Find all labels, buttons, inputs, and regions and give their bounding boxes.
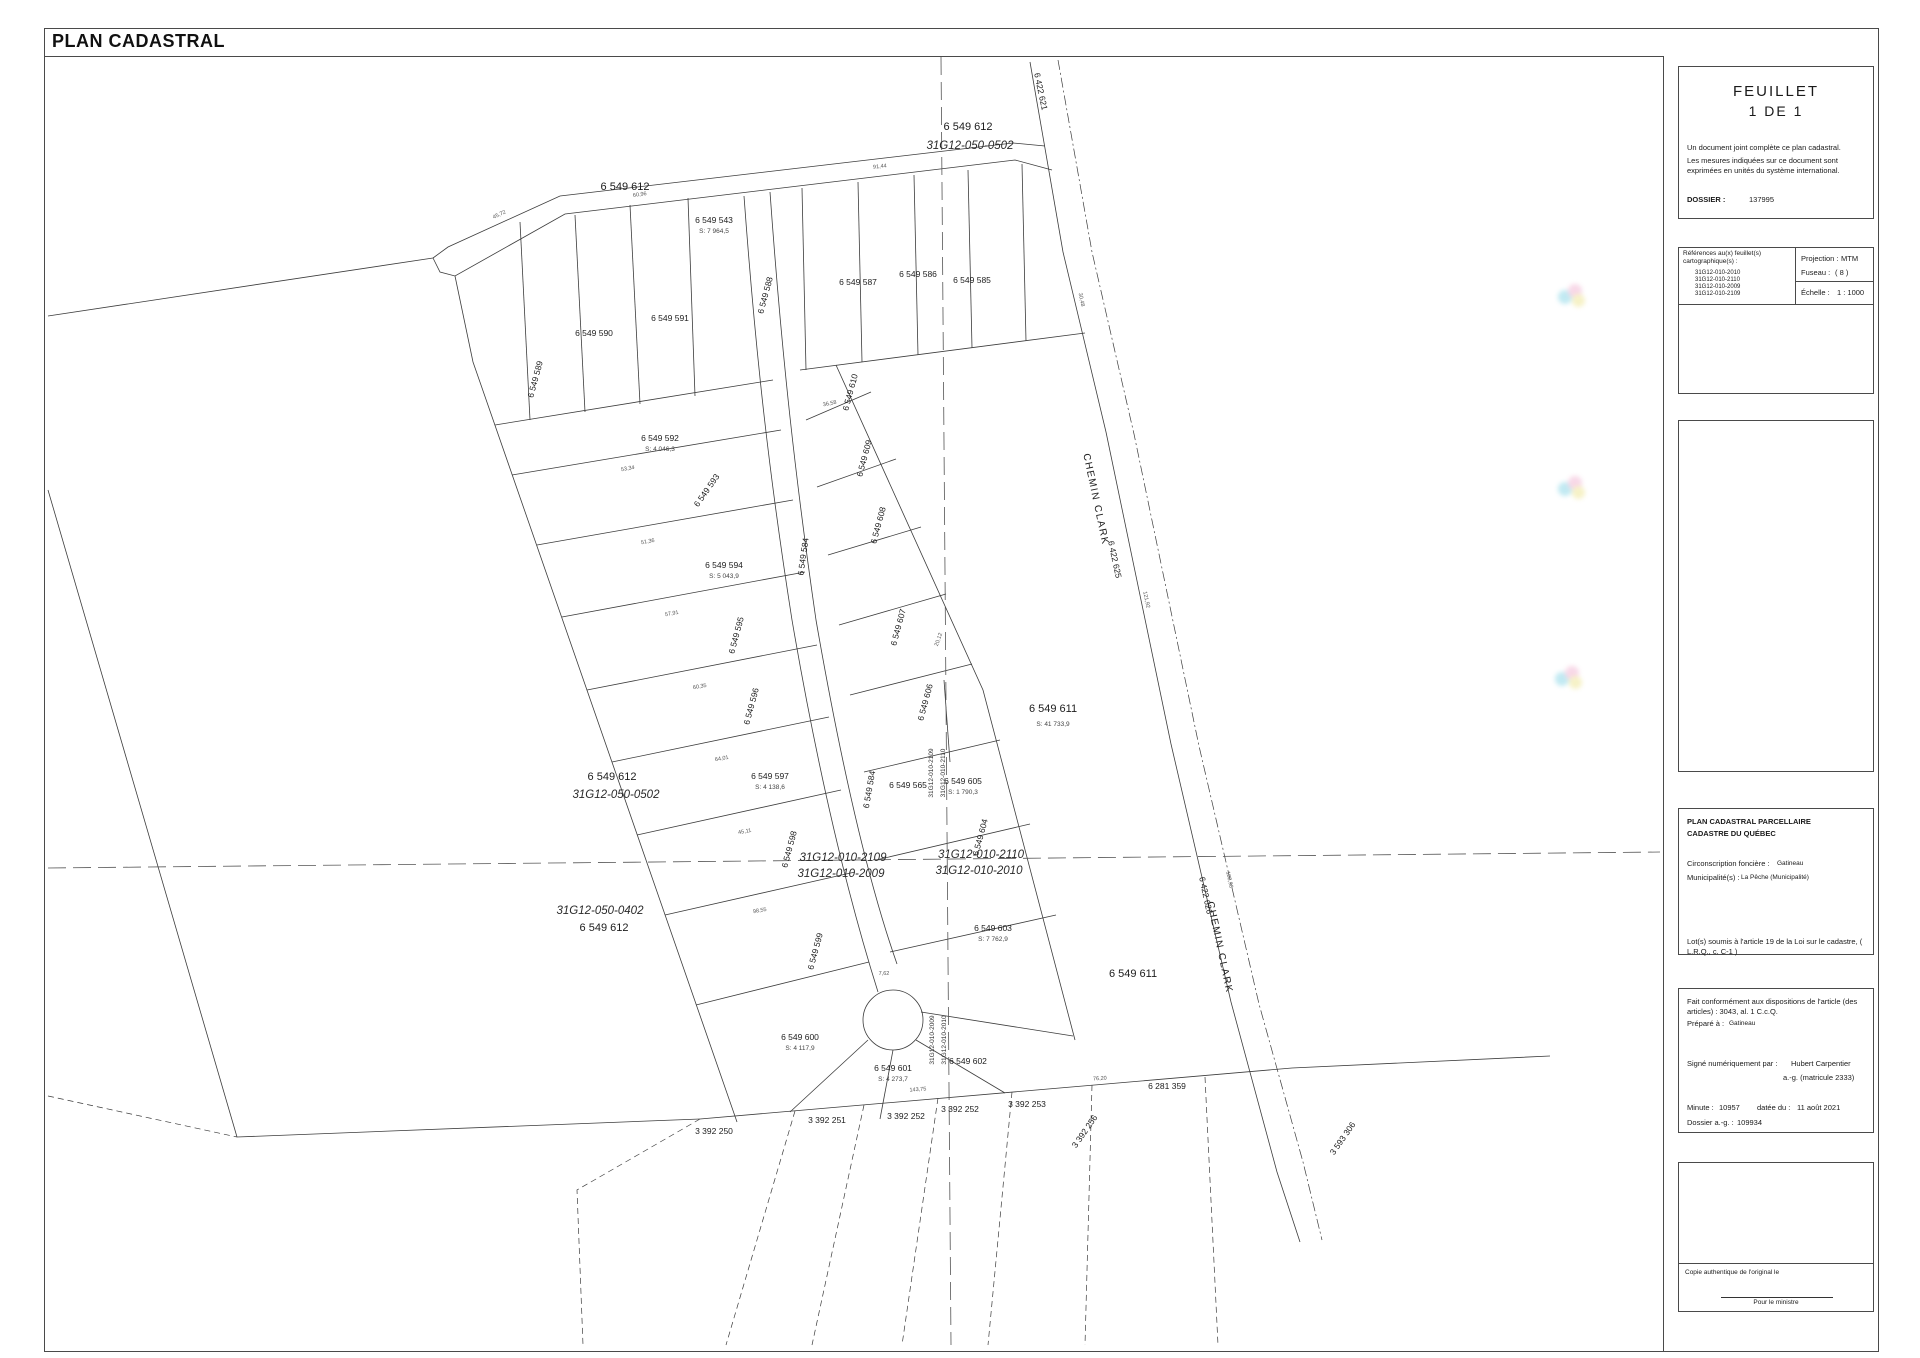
map-label: S: 7 762,9 (978, 936, 1008, 943)
feuillet-number: 1 DE 1 (1679, 103, 1873, 119)
map-label: 3 392 250 (695, 1126, 733, 1136)
map-label: 121,92 (1141, 591, 1150, 609)
fuseau-label: Fuseau : (1801, 268, 1830, 278)
cul-de-sac (863, 990, 923, 1050)
projection-value: MTM (1841, 254, 1858, 264)
map-label: 6 549 586 (899, 269, 937, 279)
map-label: 3 392 253 (1008, 1099, 1046, 1109)
signe-label: Signé numériquement par : (1687, 1059, 1777, 1069)
map-label: 31G12-010-2110 (938, 849, 1025, 861)
map-label: 6 549 612 (944, 121, 993, 133)
minute-value: 10957 (1719, 1103, 1740, 1113)
watermark-blob (1558, 476, 1588, 502)
far-west-boundary (48, 490, 237, 1137)
fuseau-value: ( 8 ) (1835, 268, 1848, 278)
map-label: 6 549 611 (1029, 703, 1077, 715)
map-label: S: 4 138,6 (755, 784, 785, 791)
sw-boundary (237, 1119, 700, 1137)
map-label: S: 4 273,7 (878, 1076, 908, 1083)
map-label: 6 549 587 (839, 277, 877, 287)
map-label: 6 549 603 (974, 923, 1012, 933)
empty-box (1678, 420, 1874, 772)
map-label: 6 549 610 (840, 372, 860, 411)
map-label: 6 549 601 (874, 1063, 912, 1073)
certification-line: Fait conformément aux dispositions de l'… (1687, 997, 1867, 1016)
map-label: 76,20 (1093, 1076, 1107, 1083)
divider (1679, 1263, 1873, 1264)
map-label: 45,72 (492, 209, 507, 220)
map-label: 6 549 585 (953, 275, 991, 285)
map-label: 6 549 592 (641, 433, 679, 443)
copy-box: Copie authentique de l'original le Pour … (1678, 1162, 1874, 1312)
ref-sheet-3: 31G12-010-2009 (1695, 284, 1740, 291)
map-label: 6 549 588 (755, 275, 775, 314)
map-label: S: 5 043,9 (709, 573, 739, 580)
prepare-value: Gatineau (1729, 1020, 1755, 1028)
map-label: S: 7 964,5 (699, 228, 729, 235)
road-543-lower (433, 160, 1052, 276)
map-label: 6 549 596 (741, 686, 761, 725)
signature-line (1721, 1297, 1833, 1298)
echelle-label: Échelle : (1801, 288, 1830, 298)
map-label: 51,36 (641, 538, 656, 546)
watermark-blob (1555, 666, 1585, 692)
map-label: 31G12-050-0402 (557, 905, 645, 917)
map-label: 6 549 584 (795, 537, 810, 576)
feuillet-box: FEUILLET 1 DE 1 Un document joint complè… (1678, 66, 1874, 219)
ref-sheet-1: 31G12-010-2010 (1695, 270, 1740, 277)
map-label: 6 549 612 (588, 771, 637, 783)
cadastre-title-2: CADASTRE DU QUÉBEC (1687, 829, 1776, 839)
cadastre-note: Lot(s) soumis à l'article 19 de la Loi s… (1687, 937, 1869, 956)
prepare-label: Préparé à : (1687, 1019, 1724, 1029)
map-label: 36,58 (822, 400, 837, 409)
map-label: 6 549 602 (949, 1056, 987, 1066)
map-label: 6 549 598 (779, 829, 799, 868)
map-label: 6 549 593 (692, 472, 722, 509)
map-label: 3 392 251 (808, 1115, 846, 1125)
map-label: 30,48 (1077, 292, 1086, 307)
map-label: 6 549 595 (726, 615, 746, 654)
map-label: 60,96 (633, 191, 647, 199)
map-label: 6 549 605 (944, 776, 982, 786)
watermark-blob (1558, 284, 1588, 310)
map-label: 188,98 (1224, 871, 1233, 889)
map-label: 6 549 594 (705, 560, 743, 570)
map-label: 3 593 306 (1328, 1120, 1358, 1157)
ref-sheet-2: 31G12-010-2110 (1695, 277, 1740, 284)
map-label: 31G12-010-2109 (928, 748, 935, 798)
map-label: 6 549 584 (861, 770, 877, 809)
map-label: 7,62 (879, 971, 890, 977)
circonscription-value: Gatineau (1777, 860, 1803, 868)
chemin-clark-west (1030, 62, 1300, 1242)
feuillet-note1: Un document joint complète ce plan cadas… (1687, 143, 1865, 153)
map-labels: 6 422 6216 549 61231G12-050-05026 549 61… (492, 72, 1358, 1157)
certification-box: Fait conformément aux dispositions de l'… (1678, 988, 1874, 1133)
map-label: 6 549 590 (575, 328, 613, 338)
map-label: 6 281 359 (1148, 1081, 1186, 1091)
map-label: 98,55 (753, 907, 768, 915)
map-label: 6 549 600 (781, 1032, 819, 1042)
map-label: S: 4 046,3 (645, 446, 675, 453)
map-label: 31G12-050-0502 (573, 789, 661, 801)
map-label: 64,01 (715, 755, 730, 763)
map-label: 57,91 (665, 610, 680, 618)
map-label: 3 392 252 (887, 1111, 925, 1121)
map-label: CHEMIN CLARK (1080, 453, 1110, 547)
road-543-upper (433, 143, 1045, 258)
map-label: 6 549 608 (868, 505, 888, 544)
minute-label: Minute : (1687, 1103, 1714, 1113)
divider (1795, 281, 1873, 282)
map-label: 6 549 607 (888, 607, 908, 646)
map-label: 6 549 597 (751, 771, 789, 781)
ref-sheet-4: 31G12-010-2109 (1695, 291, 1740, 298)
map-label: 60,35 (693, 683, 708, 691)
map-label: 3 392 252 (941, 1104, 979, 1114)
echelle-value: 1 : 1000 (1837, 288, 1864, 298)
map-label: 91,44 (873, 163, 887, 170)
map-label: 6 422 625 (1106, 540, 1124, 579)
map-label: 53,34 (621, 465, 636, 473)
feuillet-word: FEUILLET (1679, 83, 1873, 100)
map-label: 6 549 565 (889, 780, 927, 790)
date-value: 11 août 2021 (1797, 1103, 1840, 1113)
cadastral-plan-page: PLAN CADASTRAL (0, 0, 1920, 1358)
map-label: 45,11 (738, 828, 752, 836)
map-label: 6 549 606 (915, 682, 935, 721)
signe-name: Hubert Carpentier (1791, 1059, 1851, 1069)
map-label: 6 549 609 (854, 438, 874, 477)
map-label: 31G12-010-2010 (941, 1015, 948, 1065)
map-label: 6 549 611 (1109, 968, 1157, 980)
copy-note: Copie authentique de l'original le (1685, 1269, 1865, 1277)
map-label: S: 4 117,9 (785, 1045, 815, 1052)
map-label: CHEMIN CLARK (1204, 901, 1234, 995)
map-label: 20,12 (934, 632, 944, 647)
municipalite-value: La Pêche (Municipalité) (1741, 874, 1809, 882)
dossier-ag-label: Dossier a.-g. : (1687, 1118, 1734, 1128)
sheet-line-vertical (941, 57, 951, 1345)
map-label: 143,75 (909, 1086, 926, 1093)
date-label: datée du : (1757, 1103, 1790, 1113)
ministre-label: Pour le ministre (1679, 1299, 1873, 1307)
map-label: 6 549 612 (580, 922, 629, 934)
map-label: 3 392 256 (1070, 1113, 1100, 1150)
references-box: Références au(x) feuillet(s) cartographi… (1678, 247, 1874, 394)
map-label: 31G12-010-2110 (940, 748, 947, 797)
projection-label: Projection : (1801, 254, 1839, 264)
municipalite-label: Municipalité(s) : (1687, 873, 1740, 883)
dossier-value: 137995 (1749, 195, 1774, 205)
dossier-label: DOSSIER : (1687, 195, 1725, 205)
cadastre-title-1: PLAN CADASTRAL PARCELLAIRE (1687, 817, 1811, 827)
map-label: 31G12-050-0502 (927, 140, 1015, 152)
feuillet-note2: Les mesures indiquées sur ce document so… (1687, 156, 1865, 175)
map-label: 6 549 599 (805, 931, 825, 970)
nw-boundary (48, 258, 433, 316)
map-label: 31G12-010-2009 (929, 1015, 936, 1065)
cadastre-box: PLAN CADASTRAL PARCELLAIRE CADASTRE DU Q… (1678, 808, 1874, 955)
signe-title: a.-g. (matricule 2333) (1783, 1073, 1854, 1083)
south-boundary (700, 1056, 1550, 1119)
west-boundary (455, 276, 737, 1122)
map-label: 31G12-010-2010 (936, 865, 1024, 877)
divider (1795, 248, 1796, 304)
references-header: Références au(x) feuillet(s) cartographi… (1683, 250, 1793, 266)
map-label: S: 1 790,3 (948, 789, 978, 796)
map-label: 6 549 543 (695, 215, 733, 225)
chemin-clark-east (1058, 60, 1322, 1240)
map-label: 31G12-010-2109 (800, 852, 888, 864)
map-label: 31G12-010-2009 (798, 868, 886, 880)
map-label: S: 41 733,9 (1036, 721, 1070, 728)
cadastral-map: 6 422 6216 549 61231G12-050-05026 549 61… (0, 0, 1920, 1358)
dossier-ag-value: 109934 (1737, 1118, 1762, 1128)
circonscription-label: Circonscription foncière : (1687, 859, 1770, 869)
divider (1679, 304, 1873, 305)
map-label: 6 549 591 (651, 313, 689, 323)
